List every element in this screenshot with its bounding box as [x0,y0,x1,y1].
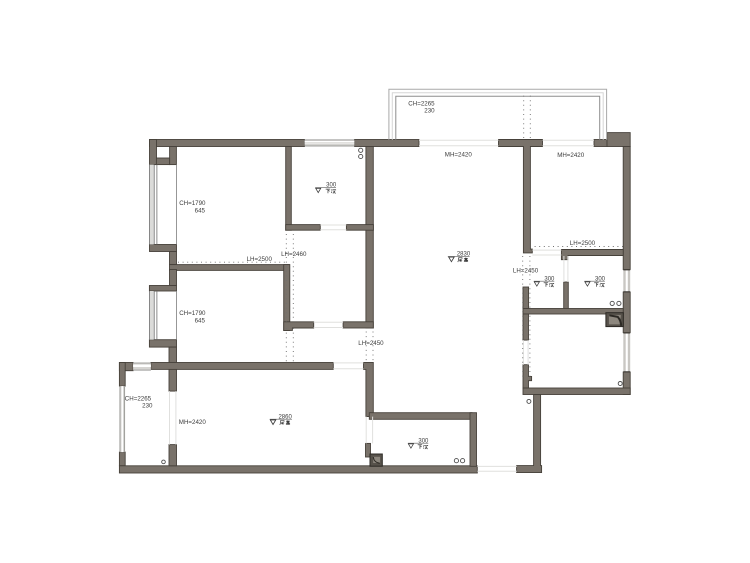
svg-text:645: 645 [195,207,206,214]
svg-text:230: 230 [424,108,435,115]
svg-text:2830: 2830 [457,252,471,258]
svg-text:LH=2450: LH=2450 [358,340,384,347]
svg-text:LH=2450: LH=2450 [513,267,539,274]
svg-text:645: 645 [195,317,206,324]
svg-text:MH=2420: MH=2420 [445,151,473,158]
svg-text:300: 300 [326,183,337,189]
svg-text:MH=2420: MH=2420 [557,152,585,159]
svg-text:2860: 2860 [278,414,292,420]
svg-text:MH=2420: MH=2420 [179,419,207,426]
svg-text:300: 300 [544,276,555,282]
svg-text:LH=2500: LH=2500 [247,256,273,263]
svg-text:CH=1790: CH=1790 [179,310,206,317]
svg-text:300: 300 [595,276,606,282]
svg-text:230: 230 [142,402,153,409]
svg-text:CH=2265: CH=2265 [408,101,435,108]
svg-text:CH=1790: CH=1790 [179,200,206,207]
svg-text:LH=2460: LH=2460 [281,251,307,258]
svg-text:LH=2500: LH=2500 [570,240,596,247]
svg-text:300: 300 [418,438,429,444]
